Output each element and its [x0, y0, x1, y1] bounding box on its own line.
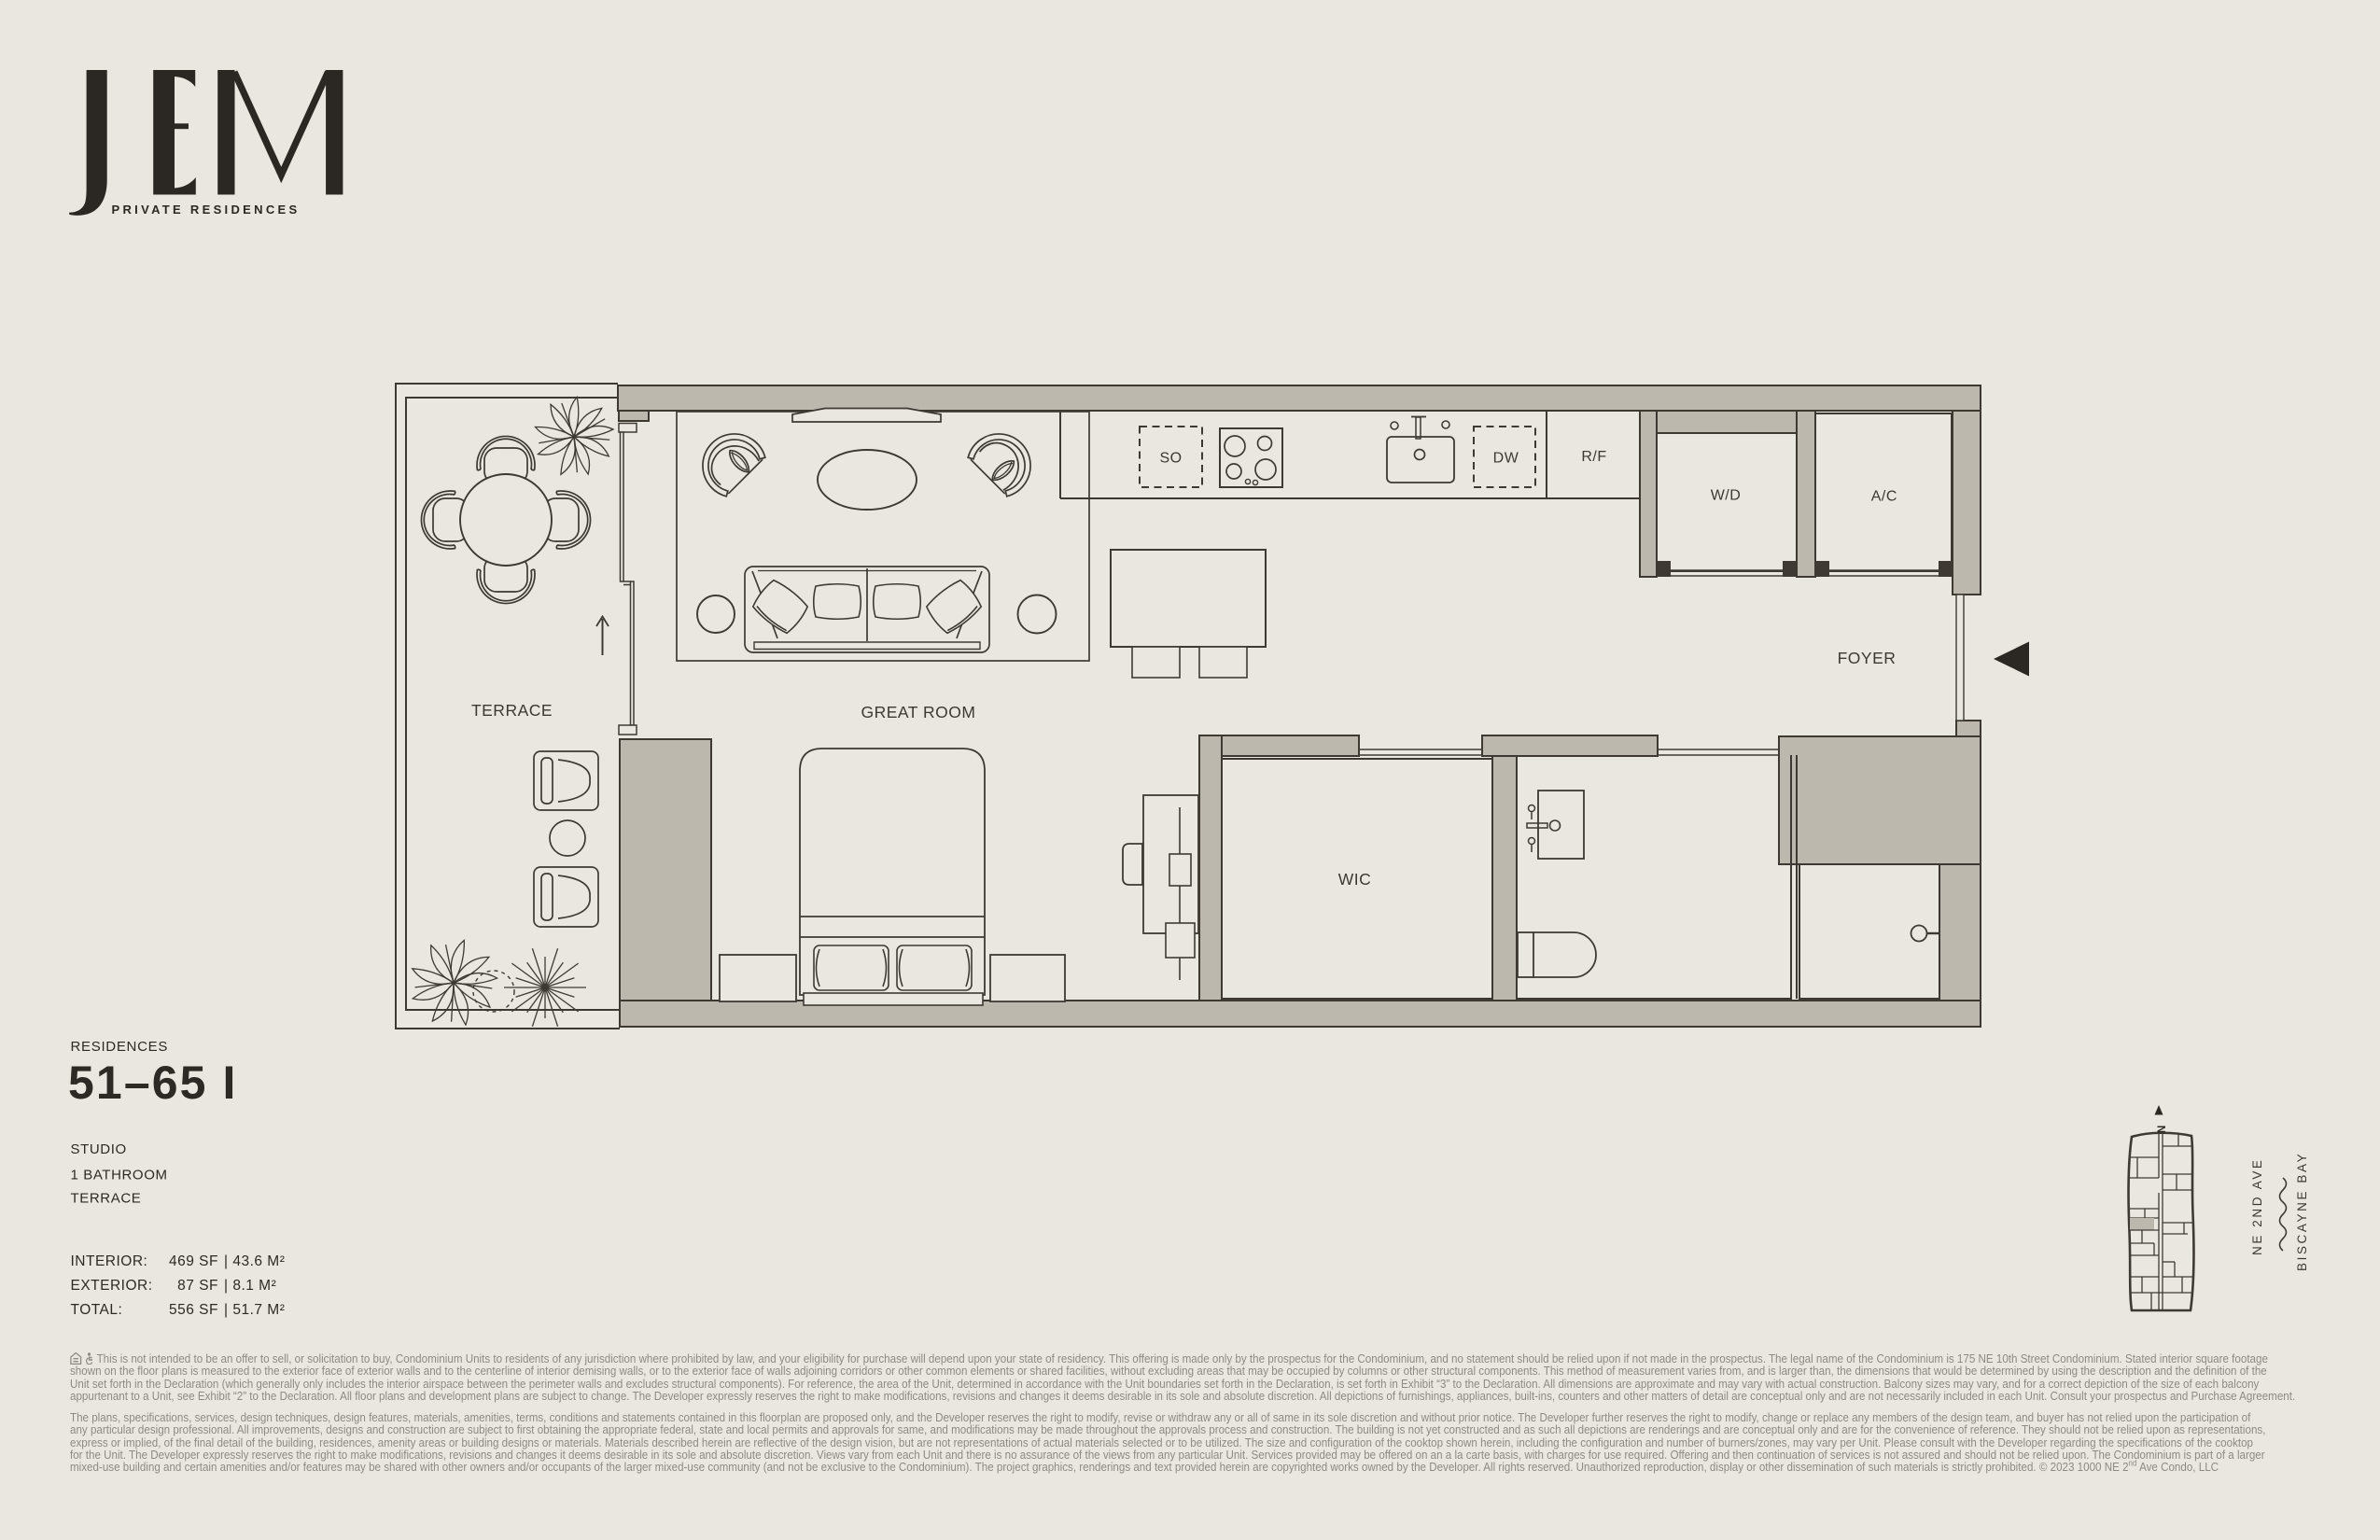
svg-text:87 SF: 87 SF	[177, 1278, 218, 1294]
svg-text:GREAT ROOM: GREAT ROOM	[861, 703, 976, 721]
svg-text:1 BATHROOM: 1 BATHROOM	[71, 1168, 168, 1183]
svg-text:TOTAL:: TOTAL:	[71, 1302, 123, 1318]
svg-text:FOYER: FOYER	[1838, 649, 1897, 667]
svg-text:W/D: W/D	[1711, 488, 1742, 504]
svg-text:A/C: A/C	[1871, 489, 1897, 505]
svg-text:PRIVATE RESIDENCES: PRIVATE RESIDENCES	[112, 203, 301, 217]
svg-text:RESIDENCES: RESIDENCES	[71, 1039, 169, 1055]
svg-text:NE 2ND AVE: NE 2ND AVE	[2250, 1157, 2264, 1255]
svg-text:| 51.7 M²: | 51.7 M²	[224, 1302, 285, 1318]
svg-text:| 43.6 M²: | 43.6 M²	[224, 1253, 285, 1269]
svg-text:INTERIOR:: INTERIOR:	[71, 1253, 148, 1269]
svg-text:STUDIO: STUDIO	[71, 1141, 127, 1157]
svg-text:N: N	[2157, 1126, 2168, 1133]
svg-text:TERRACE: TERRACE	[471, 701, 553, 720]
svg-text:469 SF: 469 SF	[169, 1253, 218, 1269]
svg-text:BISCAYNE BAY: BISCAYNE BAY	[2295, 1152, 2309, 1271]
svg-text:51–65 I: 51–65 I	[68, 1057, 238, 1109]
svg-text:TERRACE: TERRACE	[71, 1191, 142, 1207]
svg-text:| 8.1 M²: | 8.1 M²	[224, 1278, 276, 1294]
svg-text:R/F: R/F	[1581, 449, 1606, 465]
svg-text:SO: SO	[1159, 451, 1182, 467]
svg-text:EXTERIOR:: EXTERIOR:	[71, 1278, 153, 1294]
svg-text:DW: DW	[1493, 451, 1519, 467]
svg-text:WIC: WIC	[1338, 870, 1372, 889]
svg-text:556 SF: 556 SF	[169, 1302, 218, 1318]
